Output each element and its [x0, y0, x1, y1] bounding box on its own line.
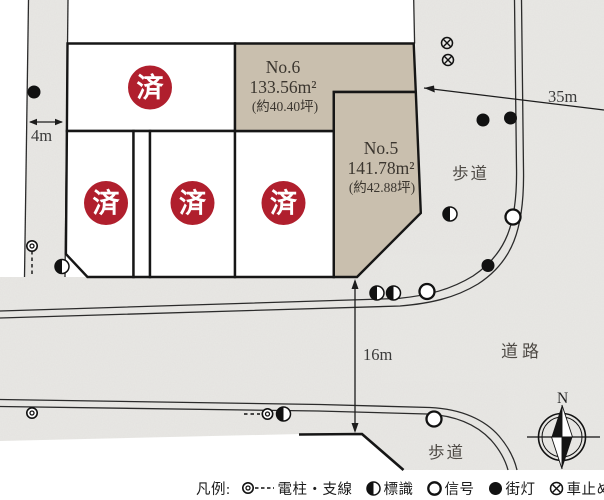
- sidewalk-label-east: 歩道: [452, 164, 489, 183]
- legend-item-signal: 信号: [426, 478, 475, 499]
- lot-no6-tsubo: (約40.40坪): [252, 99, 318, 114]
- sold-badge-label: 済: [270, 188, 298, 219]
- legend-title: 凡例:: [196, 478, 231, 499]
- legend-item-sign: 標識: [365, 478, 414, 499]
- streetlight-icon: [482, 259, 495, 272]
- sign-icon: [370, 286, 384, 300]
- sidewalk-label-south: 歩道: [428, 443, 465, 462]
- site-plan-canvas: 4m 35m 16m No.6 133.56m² (約40.40坪) No.5 …: [0, 0, 604, 500]
- signal-icon: [426, 480, 443, 497]
- streetlight-icon: [504, 112, 517, 125]
- sold-badge: 済: [128, 66, 172, 110]
- sign-icon: [277, 407, 291, 421]
- signal-icon: [506, 210, 521, 225]
- compass-north-label: N: [557, 390, 568, 407]
- streetlight-icon: [477, 114, 490, 127]
- lot-strip-shape: [134, 131, 151, 277]
- legend-item-utility-pole: 電柱・支線: [240, 478, 353, 499]
- road-label: 道路: [501, 342, 543, 361]
- sold-badge-label: 済: [179, 188, 207, 219]
- utility-pole-icon: [27, 408, 37, 418]
- sold-badge: 済: [171, 181, 215, 225]
- streetlight-icon: [487, 480, 504, 497]
- legend-label: 街灯: [506, 478, 536, 499]
- legend-item-streetlight: 街灯: [487, 478, 536, 499]
- sold-badge-label: 済: [137, 72, 165, 103]
- dimension-16m-label: 16m: [363, 345, 393, 364]
- legend-label: 車止め: [567, 478, 604, 499]
- utility-pole-icon: [240, 480, 276, 496]
- lot-no5-tsubo: (約42.88坪): [349, 180, 415, 195]
- car-stop-icon: [548, 480, 565, 497]
- sign-icon: [55, 260, 69, 274]
- dimension-35m-label: 35m: [548, 87, 578, 106]
- legend: 凡例: 電柱・支線 標識 信号 街灯 車止め: [196, 477, 604, 499]
- lot-no6-name: No.6: [266, 57, 301, 77]
- lot-no5-name: No.5: [364, 138, 399, 158]
- sold-badge: 済: [84, 181, 128, 225]
- car-stop-icon: [443, 55, 454, 66]
- legend-label: 標識: [384, 478, 414, 499]
- sign-icon: [443, 207, 457, 221]
- lot-no5-area: 141.78m²: [348, 158, 415, 178]
- streetlight-icon: [28, 86, 41, 99]
- legend-label: 信号: [445, 478, 475, 499]
- car-stop-icon: [442, 38, 453, 49]
- sign-icon: [387, 286, 401, 300]
- sold-badge: 済: [262, 181, 306, 225]
- site-plan-map: 4m 35m 16m No.6 133.56m² (約40.40坪) No.5 …: [0, 0, 604, 500]
- dimension-4m-label: 4m: [31, 126, 52, 145]
- legend-item-car-stop: 車止め: [548, 478, 604, 499]
- signal-icon: [420, 284, 435, 299]
- lot-no6-area: 133.56m²: [250, 77, 317, 97]
- signal-icon: [427, 412, 442, 427]
- sign-icon: [365, 480, 382, 497]
- legend-label: 電柱・支線: [278, 478, 353, 499]
- sold-badge-label: 済: [93, 188, 121, 219]
